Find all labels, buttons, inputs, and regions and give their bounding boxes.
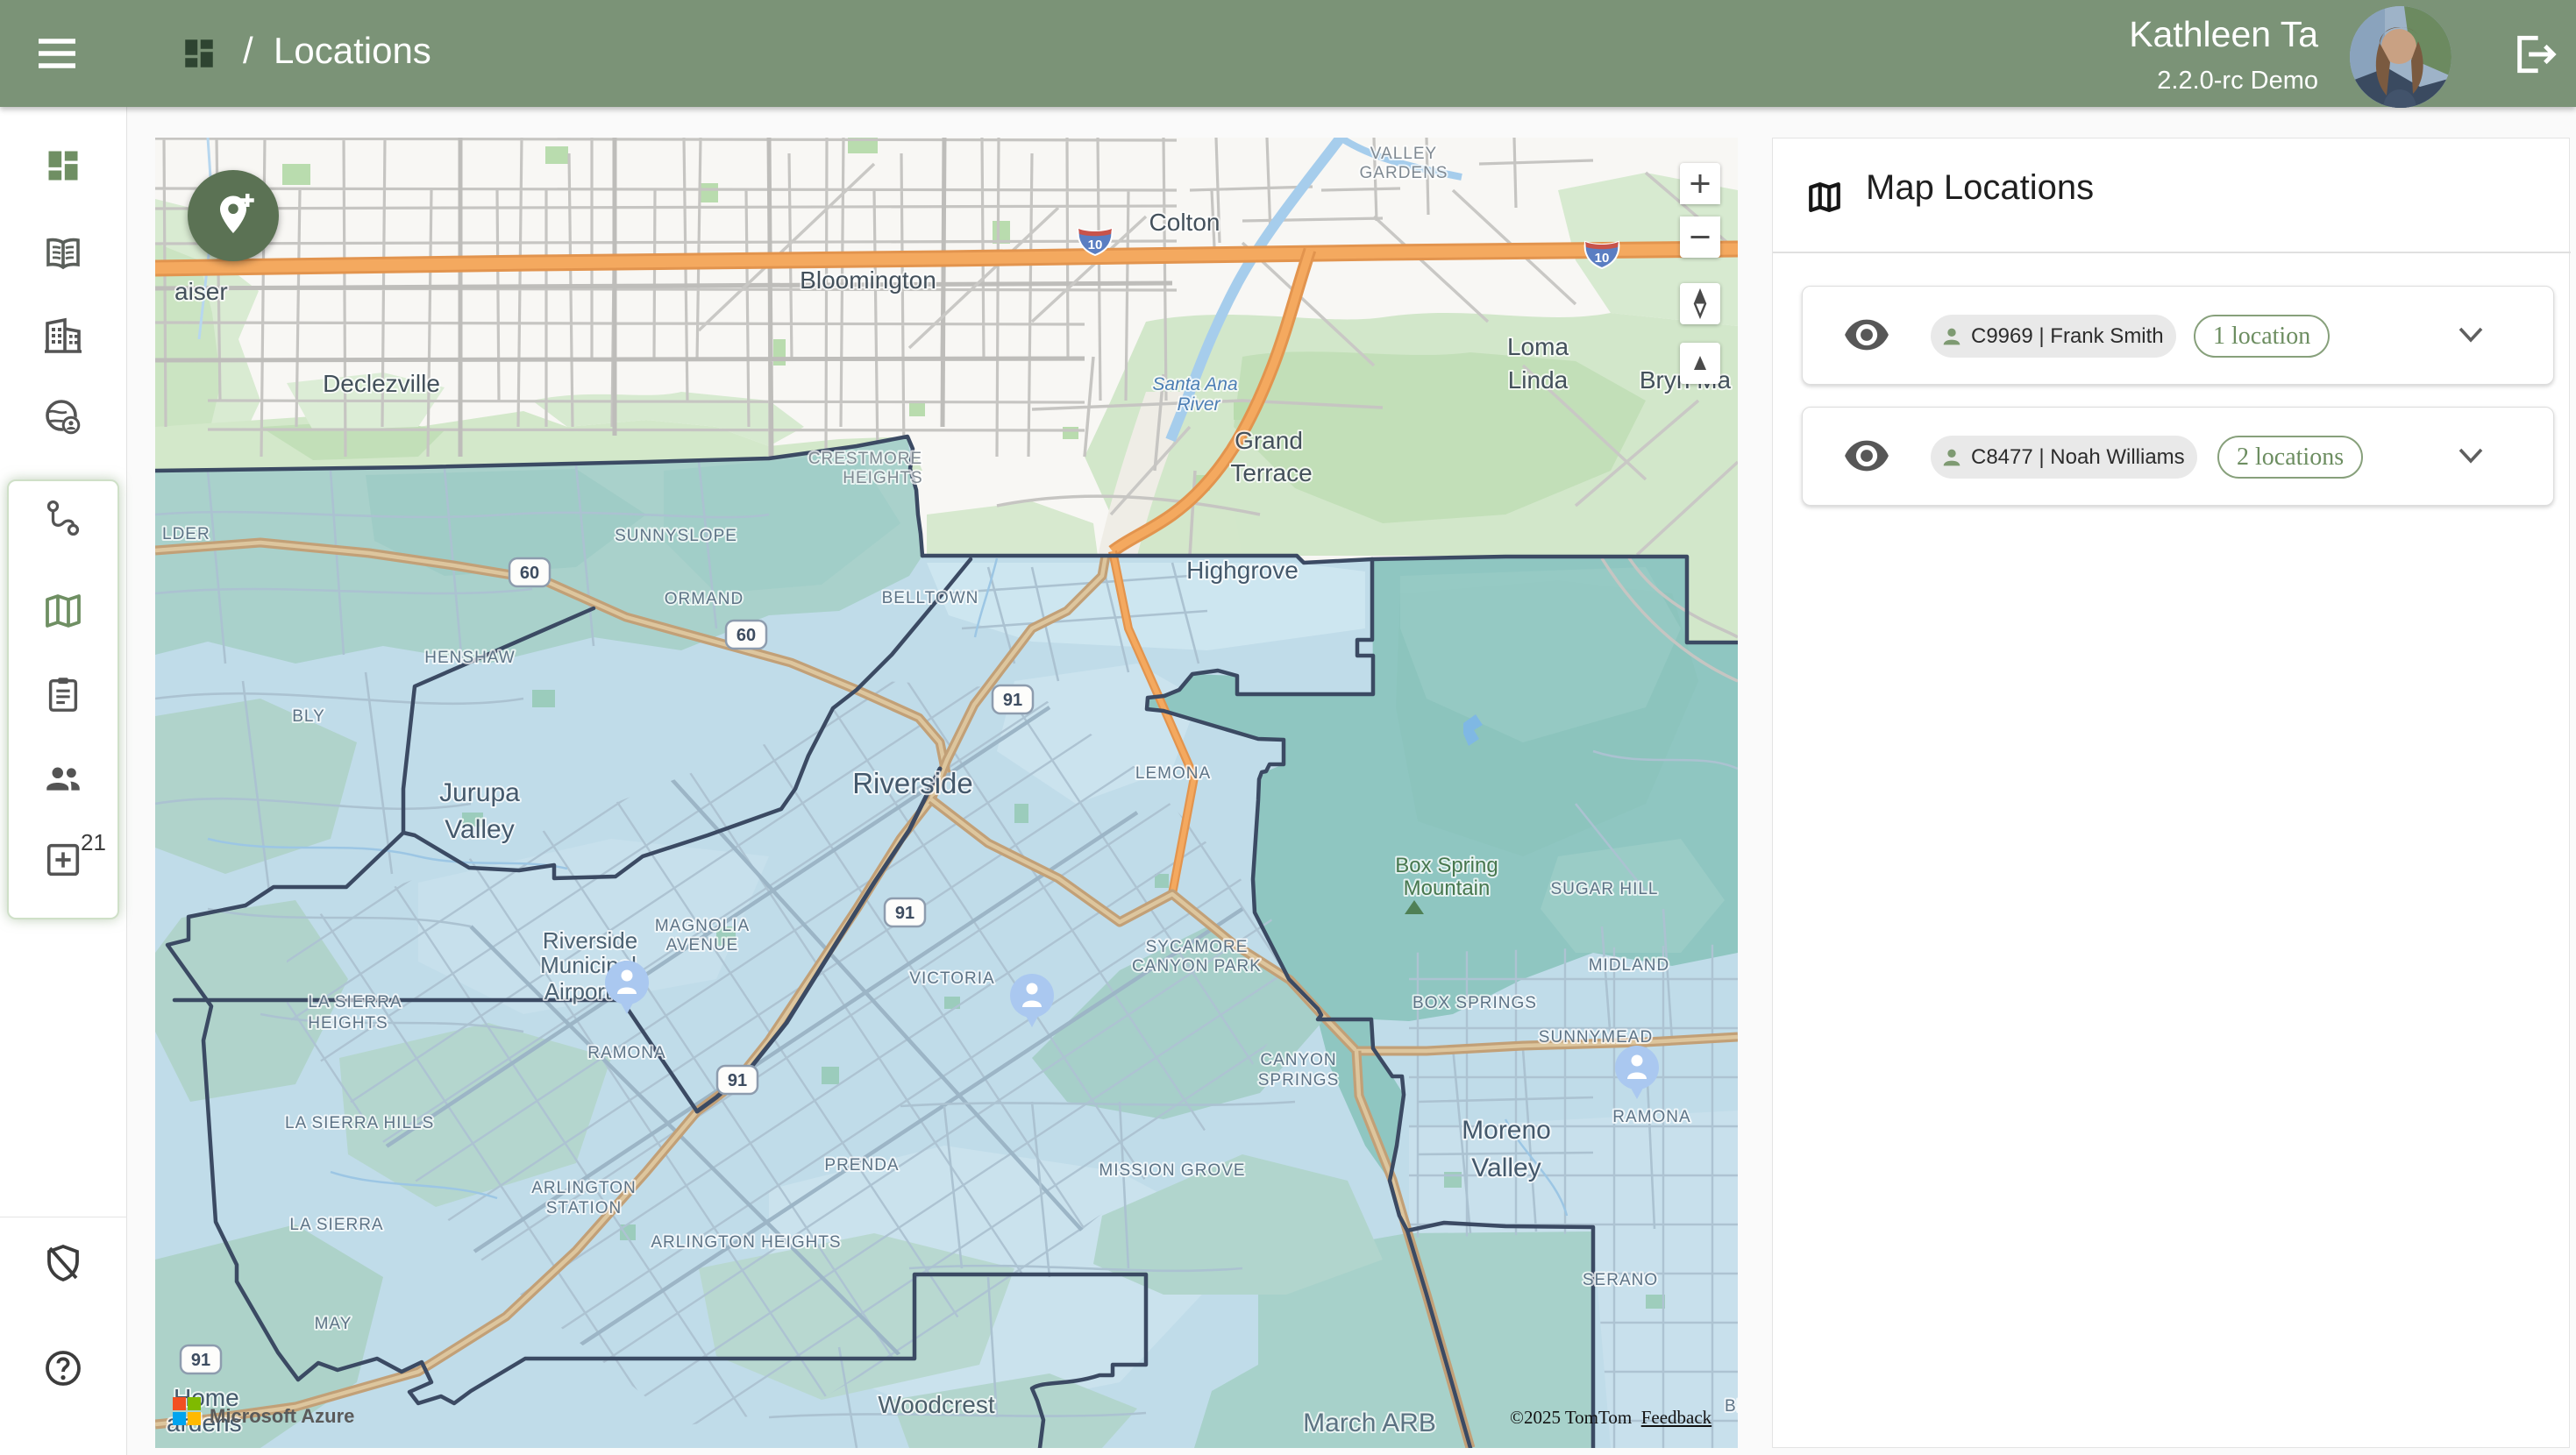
svg-text:RAMONA: RAMONA xyxy=(587,1044,665,1062)
svg-text:Bloomington: Bloomington xyxy=(800,266,936,294)
svg-text:LA SIERRA: LA SIERRA xyxy=(308,993,402,1011)
svg-text:ARLINGTON: ARLINGTON xyxy=(531,1179,637,1197)
svg-text:Riverside: Riverside xyxy=(543,927,637,954)
svg-text:SERANO: SERANO xyxy=(1583,1271,1658,1289)
svg-text:ORMAND: ORMAND xyxy=(665,590,744,608)
svg-text:Linda: Linda xyxy=(1508,366,1569,394)
svg-text:Declezville: Declezville xyxy=(323,370,440,397)
svg-text:PRENDA: PRENDA xyxy=(824,1156,899,1175)
svg-text:SUNNYSLOPE: SUNNYSLOPE xyxy=(615,527,737,545)
svg-text:91: 91 xyxy=(728,1071,747,1090)
svg-text:Grand: Grand xyxy=(1235,427,1303,454)
svg-text:MAGNOLIA: MAGNOLIA xyxy=(655,917,750,935)
svg-text:LEMONA: LEMONA xyxy=(1135,764,1211,783)
svg-text:91: 91 xyxy=(895,904,914,923)
svg-text:BLY: BLY xyxy=(292,707,325,726)
svg-text:RAMONA: RAMONA xyxy=(1612,1108,1690,1126)
svg-text:Moreno: Moreno xyxy=(1462,1116,1551,1145)
svg-text:HEIGHTS: HEIGHTS xyxy=(843,469,922,487)
svg-text:VALLEY: VALLEY xyxy=(1370,145,1437,163)
svg-text:Woodcrest: Woodcrest xyxy=(878,1391,995,1418)
svg-text:MISSION GROVE: MISSION GROVE xyxy=(1099,1161,1245,1180)
svg-text:Mountain: Mountain xyxy=(1404,877,1491,900)
svg-text:10: 10 xyxy=(1595,251,1610,266)
svg-text:Riverside: Riverside xyxy=(852,767,973,799)
svg-text:LA SIERRA HILLS: LA SIERRA HILLS xyxy=(285,1114,434,1132)
svg-text:LDER: LDER xyxy=(162,525,210,543)
svg-text:91: 91 xyxy=(1003,691,1022,710)
svg-text:LA SIERRA: LA SIERRA xyxy=(289,1216,383,1234)
svg-text:River: River xyxy=(1177,394,1220,415)
svg-text:ARLINGTON HEIGHTS: ARLINGTON HEIGHTS xyxy=(651,1233,841,1252)
svg-text:SYCAMORE: SYCAMORE xyxy=(1146,938,1249,956)
svg-text:BETHAN: BETHAN xyxy=(1725,1397,1738,1416)
svg-text:MAY: MAY xyxy=(315,1315,352,1333)
svg-text:March ARB: March ARB xyxy=(1303,1409,1436,1437)
svg-text:Valley: Valley xyxy=(1471,1153,1541,1182)
svg-text:HENSHAW: HENSHAW xyxy=(424,649,515,667)
svg-text:Santa Ana: Santa Ana xyxy=(1152,374,1237,394)
svg-text:Jurupa: Jurupa xyxy=(439,778,520,807)
svg-text:aiser: aiser xyxy=(174,278,228,305)
svg-text:CANYON PARK: CANYON PARK xyxy=(1132,957,1262,976)
svg-text:HEIGHTS: HEIGHTS xyxy=(308,1014,388,1033)
svg-text:AVENUE: AVENUE xyxy=(666,936,739,955)
svg-text:Valley: Valley xyxy=(445,815,514,844)
svg-text:SUNNYMEAD: SUNNYMEAD xyxy=(1539,1028,1653,1047)
svg-text:CANYON: CANYON xyxy=(1260,1051,1336,1069)
svg-text:Highgrove: Highgrove xyxy=(1186,557,1299,584)
svg-text:60: 60 xyxy=(520,564,539,583)
svg-text:MIDLAND: MIDLAND xyxy=(1589,956,1670,975)
svg-text:Box Spring: Box Spring xyxy=(1395,854,1498,877)
svg-text:CRESTMORE: CRESTMORE xyxy=(808,450,922,468)
svg-text:VICTORIA: VICTORIA xyxy=(909,969,994,988)
svg-text:60: 60 xyxy=(737,626,756,645)
svg-text:Terrace: Terrace xyxy=(1230,459,1312,486)
svg-text:SPRINGS: SPRINGS xyxy=(1258,1071,1340,1089)
svg-text:BOX SPRINGS: BOX SPRINGS xyxy=(1413,994,1537,1012)
svg-text:SUGAR HILL: SUGAR HILL xyxy=(1551,880,1659,898)
svg-text:Loma: Loma xyxy=(1507,333,1569,360)
svg-text:STATION: STATION xyxy=(546,1199,623,1217)
svg-text:Colton: Colton xyxy=(1149,209,1220,236)
svg-text:GARDENS: GARDENS xyxy=(1360,164,1448,182)
svg-text:10: 10 xyxy=(1088,238,1103,252)
svg-text:BELLTOWN: BELLTOWN xyxy=(882,589,979,607)
svg-text:91: 91 xyxy=(191,1351,210,1370)
svg-text:Airport: Airport xyxy=(544,978,612,1004)
